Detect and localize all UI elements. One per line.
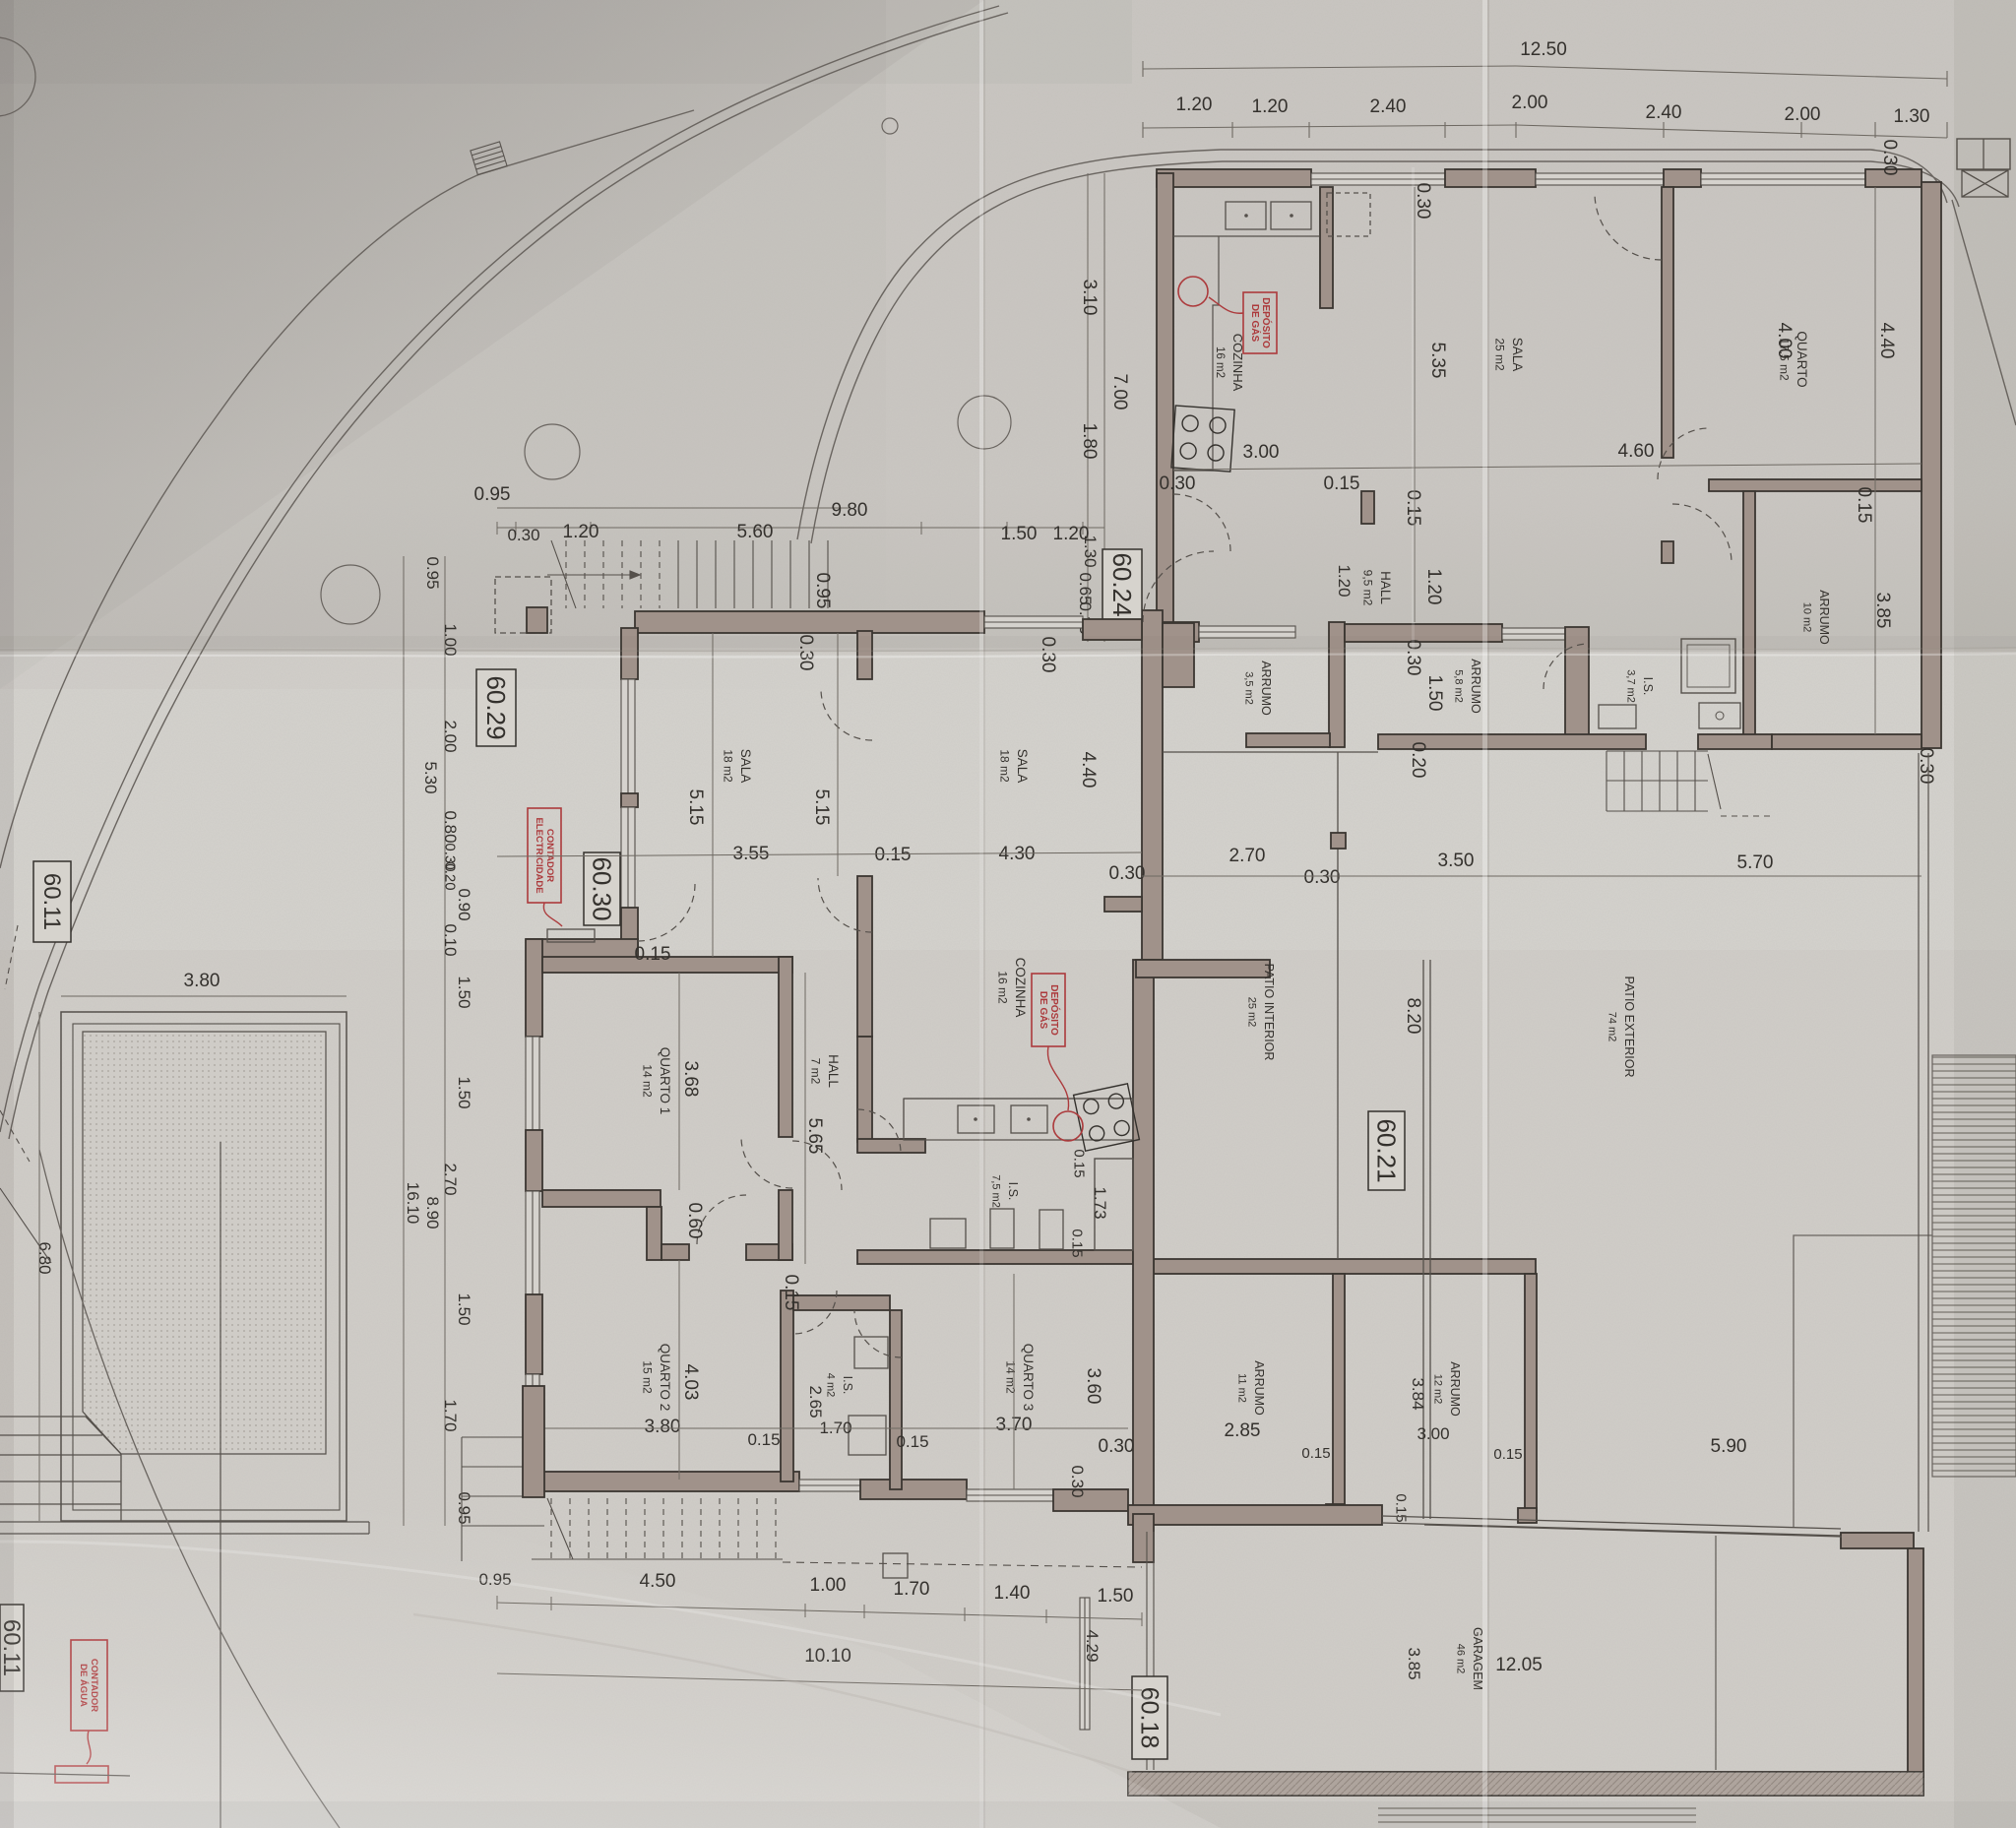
svg-text:1.50: 1.50 (1001, 524, 1038, 544)
svg-text:0.65: 0.65 (1076, 572, 1095, 604)
svg-text:2.70: 2.70 (441, 1163, 460, 1195)
svg-text:1.70: 1.70 (441, 1399, 460, 1431)
svg-text:9,5 m2: 9,5 m2 (1361, 570, 1375, 606)
svg-text:0.30: 0.30 (1304, 867, 1341, 888)
svg-text:QUARTO 1: QUARTO 1 (658, 1047, 672, 1115)
svg-text:60.11: 60.11 (38, 873, 65, 930)
svg-text:0.95: 0.95 (474, 484, 511, 505)
svg-text:0.30: 0.30 (1879, 140, 1900, 176)
svg-text:3,5 m2: 3,5 m2 (1243, 671, 1255, 705)
svg-text:16.10: 16.10 (404, 1182, 422, 1225)
svg-text:3.60: 3.60 (1083, 1368, 1103, 1405)
svg-text:0.15: 0.15 (1069, 1229, 1086, 1257)
svg-text:ELECTRICIDADE: ELECTRICIDADE (534, 817, 544, 893)
svg-text:DEPÓSITO: DEPÓSITO (1260, 297, 1273, 348)
svg-text:5.15: 5.15 (685, 789, 706, 826)
svg-text:COZINHA: COZINHA (1230, 334, 1245, 392)
svg-text:ARRUMO: ARRUMO (1259, 661, 1273, 716)
svg-text:6.80: 6.80 (35, 1241, 54, 1274)
svg-text:ARRUMO: ARRUMO (1469, 659, 1482, 714)
svg-text:0.15: 0.15 (875, 845, 912, 865)
svg-text:0.30: 0.30 (1068, 1465, 1087, 1497)
svg-text:14 m2: 14 m2 (1004, 1360, 1018, 1394)
svg-text:16 m2: 16 m2 (996, 971, 1010, 1004)
svg-text:3.10: 3.10 (1079, 280, 1100, 316)
svg-text:1.50: 1.50 (1098, 1586, 1134, 1607)
svg-text:2.00: 2.00 (1512, 93, 1548, 113)
svg-text:3.84: 3.84 (1409, 1377, 1427, 1410)
svg-text:3.80: 3.80 (645, 1417, 681, 1437)
svg-text:HALL: HALL (1378, 571, 1393, 604)
svg-text:DEPÓSITO: DEPÓSITO (1048, 984, 1061, 1036)
svg-text:9.80: 9.80 (832, 500, 868, 521)
svg-text:1.50: 1.50 (1424, 675, 1445, 712)
svg-text:DE GÁS: DE GÁS (1038, 991, 1050, 1030)
svg-text:0.15: 0.15 (1071, 1149, 1088, 1177)
svg-text:1.20: 1.20 (1423, 569, 1444, 605)
svg-text:4.40: 4.40 (1078, 752, 1099, 788)
svg-text:0.30: 0.30 (1099, 1436, 1135, 1457)
svg-text:QUARTO 2: QUARTO 2 (658, 1344, 672, 1412)
svg-text:3.80: 3.80 (184, 971, 220, 991)
svg-text:15 m2: 15 m2 (641, 1360, 655, 1394)
svg-text:0.15: 0.15 (781, 1275, 801, 1311)
svg-text:3.00: 3.00 (1417, 1424, 1449, 1443)
svg-text:1.20: 1.20 (563, 522, 599, 542)
svg-text:11 m2: 11 m2 (1236, 1373, 1248, 1403)
svg-text:1.30: 1.30 (1894, 106, 1930, 127)
svg-text:7,5 m2: 7,5 m2 (990, 1174, 1002, 1208)
svg-text:0.30: 0.30 (1413, 183, 1433, 220)
svg-text:7.00: 7.00 (1109, 374, 1130, 410)
svg-text:QUARTO 3: QUARTO 3 (1021, 1344, 1036, 1412)
svg-text:25 m2: 25 m2 (1493, 338, 1507, 371)
svg-text:HALL: HALL (826, 1054, 841, 1088)
svg-text:SALA: SALA (1015, 749, 1030, 784)
svg-text:4.30: 4.30 (999, 844, 1036, 864)
svg-text:0.15: 0.15 (1324, 473, 1360, 494)
svg-text:5,8 m2: 5,8 m2 (1453, 669, 1465, 703)
svg-text:5.70: 5.70 (1737, 852, 1774, 873)
svg-text:12.05: 12.05 (1495, 1655, 1543, 1675)
svg-text:I.S.: I.S. (841, 1376, 854, 1395)
svg-text:I.S.: I.S. (1641, 677, 1655, 696)
svg-text:0.95: 0.95 (812, 573, 833, 609)
svg-text:0.20: 0.20 (1408, 742, 1428, 779)
svg-text:18 m2: 18 m2 (998, 749, 1012, 783)
svg-text:3.55: 3.55 (733, 844, 770, 864)
svg-text:5.35: 5.35 (1427, 343, 1448, 379)
svg-text:16 m2: 16 m2 (1214, 347, 1226, 378)
svg-text:2.40: 2.40 (1646, 102, 1682, 123)
svg-text:PATIO INTERIOR: PATIO INTERIOR (1262, 964, 1276, 1061)
svg-text:60.21: 60.21 (1372, 1118, 1402, 1182)
svg-text:18 m2: 18 m2 (722, 749, 735, 783)
svg-text:COZINHA: COZINHA (1013, 958, 1028, 1018)
svg-text:QUARTO: QUARTO (1795, 331, 1809, 387)
svg-text:0.15: 0.15 (1493, 1446, 1522, 1463)
svg-text:2.85: 2.85 (1225, 1420, 1261, 1441)
svg-text:0.15: 0.15 (1854, 487, 1874, 524)
svg-text:60.29: 60.29 (481, 675, 511, 739)
svg-text:0.30: 0.30 (1109, 863, 1146, 884)
svg-text:4.03: 4.03 (680, 1364, 701, 1401)
svg-text:60.30: 60.30 (588, 856, 617, 920)
svg-text:0.15: 0.15 (1393, 1493, 1410, 1522)
svg-text:60.24: 60.24 (1107, 552, 1137, 616)
svg-text:1.70: 1.70 (894, 1579, 930, 1600)
svg-text:7 m2: 7 m2 (809, 1058, 823, 1085)
svg-text:4.40: 4.40 (1876, 323, 1897, 359)
svg-text:0.15: 0.15 (896, 1432, 928, 1451)
svg-text:3.68: 3.68 (680, 1061, 701, 1098)
svg-text:4.00: 4.00 (1774, 323, 1795, 359)
svg-text:0.15: 0.15 (635, 944, 671, 965)
svg-text:CONTADOR: CONTADOR (544, 829, 555, 882)
svg-text:1.50: 1.50 (455, 1076, 473, 1108)
svg-text:3.50: 3.50 (1438, 851, 1475, 871)
svg-text:ARRUMO: ARRUMO (1252, 1360, 1266, 1416)
svg-text:0.15: 0.15 (747, 1430, 780, 1449)
svg-text:8.20: 8.20 (1403, 998, 1423, 1035)
svg-text:1.80: 1.80 (1079, 423, 1100, 460)
svg-text:0.15: 0.15 (1301, 1445, 1330, 1462)
svg-text:0.80: 0.80 (441, 810, 460, 843)
svg-text:SALA: SALA (738, 749, 753, 784)
svg-text:5.65: 5.65 (804, 1118, 825, 1155)
svg-text:0.10: 0.10 (441, 923, 460, 956)
svg-text:0.95: 0.95 (423, 556, 442, 589)
svg-text:4 m2: 4 m2 (825, 1373, 837, 1397)
svg-text:2.00: 2.00 (441, 720, 460, 752)
svg-text:1.40: 1.40 (994, 1583, 1031, 1604)
svg-text:0.30: 0.30 (507, 526, 539, 544)
svg-text:I.S.: I.S. (1006, 1182, 1020, 1201)
svg-text:10 m2: 10 m2 (1801, 602, 1813, 633)
svg-text:3.85: 3.85 (1405, 1647, 1423, 1679)
svg-text:2.40: 2.40 (1370, 96, 1407, 117)
svg-text:5.90: 5.90 (1711, 1436, 1747, 1457)
svg-text:PATIO EXTERIOR: PATIO EXTERIOR (1622, 976, 1636, 1077)
svg-text:25 m2: 25 m2 (1246, 997, 1258, 1028)
svg-text:2.70: 2.70 (1229, 846, 1266, 866)
svg-text:GARAGEM: GARAGEM (1471, 1627, 1484, 1690)
svg-text:DE GÁS: DE GÁS (1249, 304, 1262, 343)
svg-text:3.00: 3.00 (1243, 442, 1280, 463)
svg-text:3,7 m2: 3,7 m2 (1625, 669, 1637, 703)
svg-text:5.60: 5.60 (737, 522, 774, 542)
svg-text:1.73: 1.73 (1091, 1186, 1109, 1219)
svg-text:1.00: 1.00 (810, 1575, 847, 1596)
svg-text:1.20: 1.20 (1176, 95, 1213, 115)
svg-text:4.29: 4.29 (1083, 1629, 1102, 1662)
svg-text:2.00: 2.00 (1785, 104, 1821, 125)
svg-text:12 m2: 12 m2 (1432, 1374, 1444, 1405)
svg-text:74 m2: 74 m2 (1606, 1012, 1618, 1042)
svg-text:1.20: 1.20 (1252, 96, 1289, 117)
svg-text:4.60: 4.60 (1618, 441, 1655, 462)
svg-text:0.20: 0.20 (442, 861, 459, 890)
svg-text:SALA: SALA (1510, 338, 1525, 372)
svg-text:12.50: 12.50 (1520, 39, 1567, 60)
svg-text:1.50: 1.50 (455, 976, 473, 1008)
svg-text:14 m2: 14 m2 (641, 1064, 655, 1098)
svg-text:2.65: 2.65 (806, 1385, 825, 1418)
svg-text:1.50: 1.50 (455, 1292, 473, 1325)
svg-text:8.90: 8.90 (423, 1196, 442, 1229)
svg-text:0.90: 0.90 (455, 888, 473, 920)
svg-text:5.15: 5.15 (811, 789, 832, 826)
svg-text:ARRUMO: ARRUMO (1448, 1361, 1462, 1417)
svg-text:1.20: 1.20 (1335, 564, 1354, 597)
svg-text:0.30: 0.30 (1160, 473, 1196, 494)
svg-text:46 m2: 46 m2 (1455, 1644, 1467, 1674)
svg-text:0.60: 0.60 (684, 1203, 705, 1239)
svg-text:5.30: 5.30 (421, 761, 440, 793)
svg-text:1.20: 1.20 (1053, 524, 1090, 544)
